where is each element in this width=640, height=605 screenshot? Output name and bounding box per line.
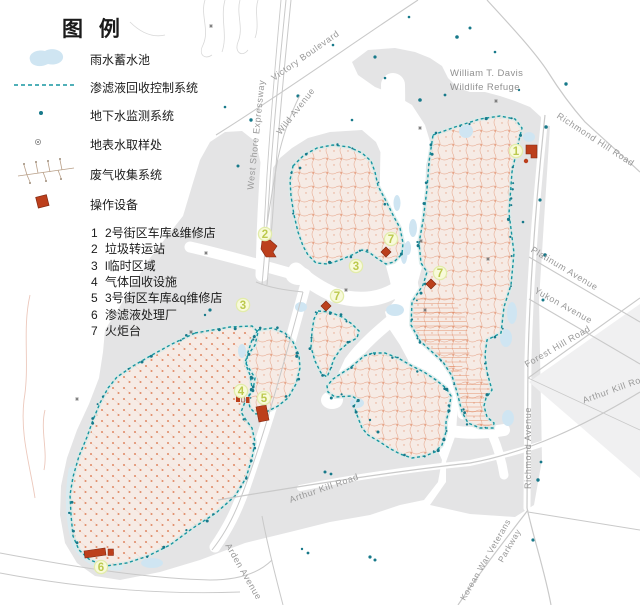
svg-text:6: 6 (98, 562, 104, 574)
svg-text:1: 1 (513, 146, 520, 158)
svg-text:7: 7 (334, 291, 340, 303)
svg-text:4: 4 (238, 386, 245, 398)
svg-text:2: 2 (262, 229, 268, 241)
svg-text:3: 3 (240, 300, 246, 312)
svg-text:7: 7 (437, 268, 443, 280)
svg-text:3: 3 (353, 261, 359, 273)
svg-text:5: 5 (261, 393, 268, 405)
svg-text:Richmond Avenue: Richmond Avenue (523, 407, 533, 489)
svg-text:William T. Davis: William T. Davis (450, 68, 523, 79)
svg-text:Wildlife Refuge: Wildlife Refuge (450, 82, 520, 93)
svg-text:7: 7 (388, 234, 394, 246)
